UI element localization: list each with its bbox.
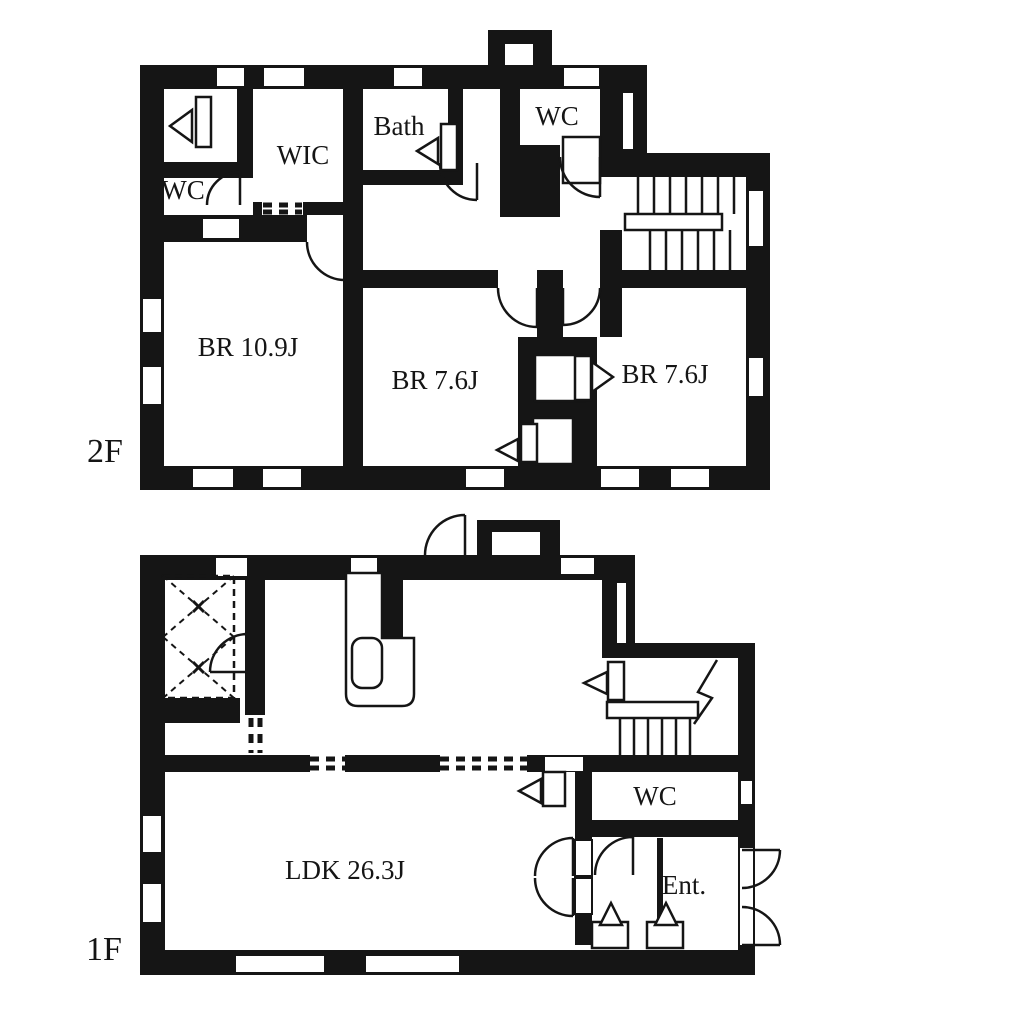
room-label-ldk: LDK 26.3J: [285, 855, 405, 885]
vent-triangle-icon: [519, 779, 541, 803]
washstand: [563, 137, 600, 183]
door-swing-exterior: [425, 515, 465, 555]
f2-stairs: [625, 177, 734, 270]
roof-notch: [505, 44, 533, 65]
closet-shelf: [575, 356, 591, 400]
door-swing-ldk-lower: [535, 878, 573, 916]
closet-shelf: [521, 424, 537, 462]
bath-fixture: [441, 124, 457, 170]
door-swing-wc: [595, 837, 633, 875]
floor-plan-page: WC WIC Bath WC BR 10.9J BR 7.6J BR 7.6J …: [0, 0, 1024, 1024]
stair-landing: [607, 702, 698, 718]
vent-triangle-icon: [592, 362, 613, 392]
f2-walls: [140, 30, 770, 490]
door-swing-br-main: [307, 242, 345, 280]
closet-shelf: [196, 97, 211, 147]
bathtub: [352, 638, 382, 688]
floor-label-2f: 2F: [87, 433, 123, 470]
closet-box: [533, 418, 573, 464]
door-swing-br-mid: [498, 288, 537, 327]
room-label-wc: WC: [633, 781, 677, 811]
stair-direction-arrow: [584, 672, 607, 694]
hall-shelf: [543, 772, 565, 806]
room-label-wc-top: WC: [535, 101, 579, 131]
room-label-entrance: Ent.: [662, 870, 706, 900]
stair-landing: [625, 214, 722, 230]
floor-plan-canvas: WC WIC Bath WC BR 10.9J BR 7.6J BR 7.6J …: [0, 0, 1024, 1024]
vent-triangle-icon: [417, 138, 438, 164]
f2-open-doorway-dashes: [262, 202, 303, 215]
door-swing-bathroom: [210, 634, 248, 672]
vent-triangle-icon: [170, 110, 192, 142]
room-label-wc-side: WC: [161, 175, 205, 205]
door-swing-br-right: [563, 288, 600, 325]
room-label-br-main: BR 10.9J: [198, 332, 299, 362]
step-triangle-icon: [600, 903, 622, 925]
stair-first-tread: [608, 662, 624, 700]
room-label-bath: Bath: [374, 111, 425, 141]
room-label-wic: WIC: [277, 140, 329, 170]
room-label-br-mid: BR 7.6J: [391, 365, 478, 395]
f1-tile-pattern: [163, 576, 234, 698]
floor-label-1f: 1F: [86, 931, 122, 968]
f1-stairs: [584, 660, 717, 755]
roof-notch: [492, 532, 540, 555]
floor-1f: LDK 26.3J WC Ent. 1F: [86, 515, 780, 975]
door-swing-ldk-upper: [535, 838, 573, 876]
room-label-br-right: BR 7.6J: [621, 359, 708, 389]
floor-2f: WC WIC Bath WC BR 10.9J BR 7.6J BR 7.6J …: [87, 30, 770, 490]
vent-triangle-icon: [497, 439, 518, 461]
